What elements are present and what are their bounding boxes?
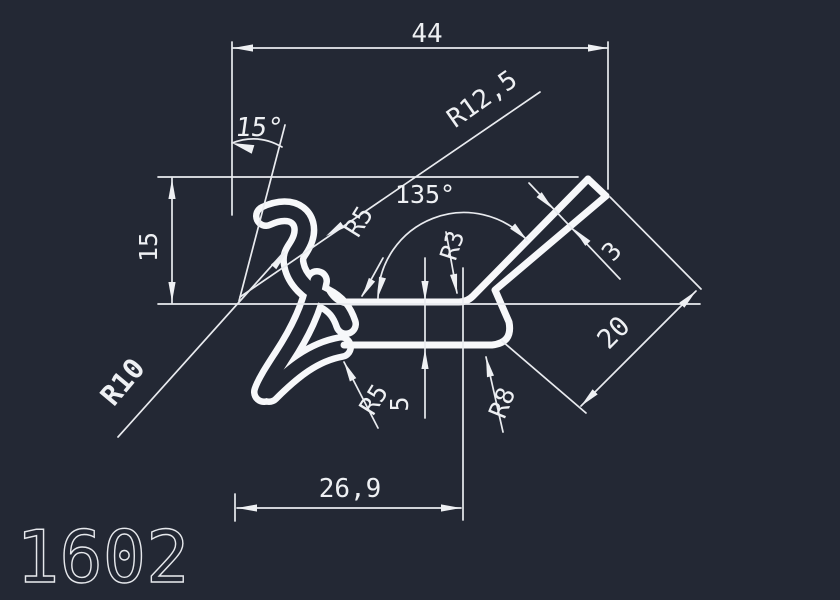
dimension-labels: 44 15° 15 R12,5 R5 135° R3 3 20 R10 R5 5… — [94, 19, 637, 504]
cad-viewport: 44 15° 15 R12,5 R5 135° R3 3 20 R10 R5 5… — [0, 0, 840, 600]
dimension-lines — [118, 42, 701, 521]
dim-arm-angle-label: 135° — [395, 180, 455, 209]
dim-base-width-label: 26,9 — [319, 474, 382, 504]
leader-r10 — [118, 252, 284, 437]
dim-line-20 — [581, 291, 696, 406]
ext-line-20-tip — [610, 197, 701, 289]
dim-base-thickness-label: 5 — [385, 396, 414, 411]
dim-arm-thickness-label: 3 — [596, 236, 628, 267]
dim-overall-width-label: 44 — [411, 19, 442, 49]
profile-drawing: 44 15° 15 R12,5 R5 135° R3 3 20 R10 R5 5… — [0, 0, 840, 600]
dim-left-height-label: 15 — [134, 232, 163, 262]
part-number: 1602 — [16, 515, 189, 599]
profile-outline — [330, 179, 606, 345]
dim-lip-angle-label: 15° — [234, 113, 285, 143]
dim-arm-root-radius-label: R3 — [435, 227, 471, 263]
dim-hook-radius-label: R10 — [94, 352, 152, 412]
dim-arm-length-label: 20 — [592, 311, 637, 356]
dim-neck-radius-label: R5 — [339, 201, 380, 242]
profile-strip-body — [264, 211, 346, 392]
dim-step-radius-label: R8 — [483, 383, 521, 422]
leader-r12-5 — [240, 92, 540, 297]
dim-lip-outer-radius-label: R12,5 — [442, 65, 523, 134]
arm-tip-face — [588, 179, 606, 196]
